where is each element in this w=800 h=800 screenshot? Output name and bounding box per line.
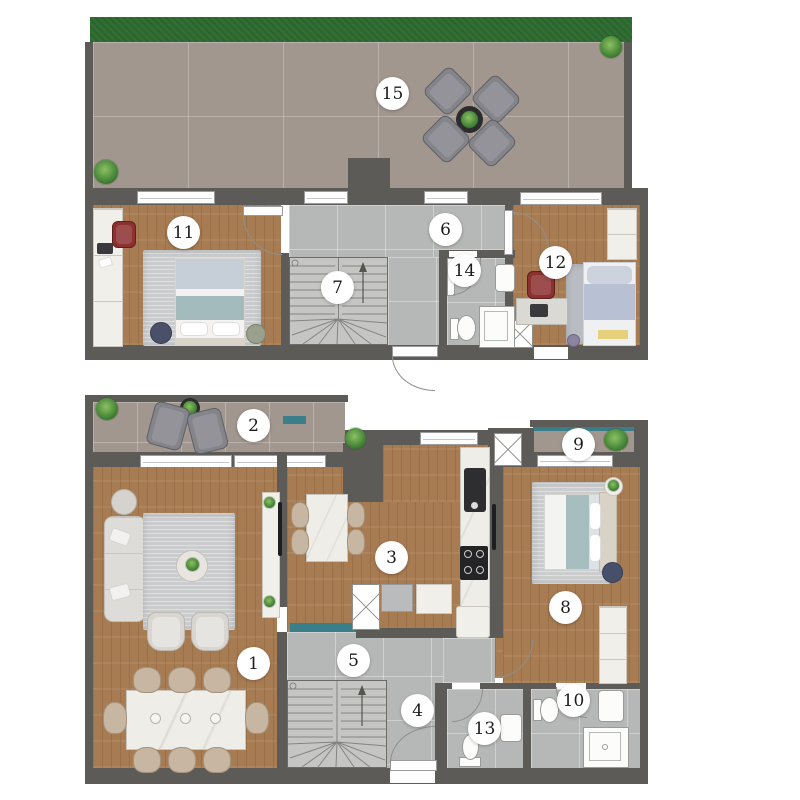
wall-wc-bathroom <box>523 689 531 768</box>
kitchen-chair <box>291 529 309 555</box>
room-label-stairs-7: 7 <box>321 271 354 304</box>
headboard <box>599 492 617 572</box>
floor-plan-canvas: 15 11 6 7 14 12 <box>0 0 800 800</box>
hall-6-floor-lower <box>388 257 443 345</box>
sink <box>598 690 624 722</box>
entry-opening <box>390 769 435 783</box>
window-terrace-1 <box>137 191 215 204</box>
room-label-hall-5: 5 <box>337 644 370 677</box>
tv-living <box>278 502 282 556</box>
sink <box>500 714 522 742</box>
wall-hall-14-v <box>439 255 447 345</box>
nightstand <box>246 324 266 344</box>
wall-balcony-2-top <box>85 395 348 402</box>
grass-strip <box>90 17 632 42</box>
cabinet <box>416 584 452 614</box>
wall-kitchen-block <box>343 443 383 503</box>
nightstand <box>602 562 623 583</box>
plant <box>604 429 628 451</box>
armchair <box>191 612 229 651</box>
wall-living-hall <box>277 632 287 768</box>
faucet <box>471 502 478 509</box>
tv-bedroom-8 <box>492 504 496 550</box>
room-label-balcony-2: 2 <box>237 409 270 442</box>
burner <box>464 550 472 558</box>
side-table <box>111 489 137 515</box>
window-bedroom-12 <box>520 192 602 205</box>
pillow <box>587 266 632 284</box>
plant <box>608 480 619 491</box>
kitchen-table <box>306 494 348 562</box>
room-label-terrace: 15 <box>376 77 409 110</box>
room-label-bathroom-14: 14 <box>448 254 481 287</box>
dining-chair <box>245 702 269 734</box>
bed-blanket <box>176 259 244 289</box>
wall-11-hall <box>281 253 289 345</box>
glass-partition-kitchen <box>290 623 356 632</box>
pillow <box>589 534 601 562</box>
door-leaf-12 <box>504 210 513 255</box>
wall-balcony-9-top <box>530 420 648 427</box>
kitchen-chair <box>347 502 365 528</box>
headboard <box>175 338 245 346</box>
room-label-hall-6: 6 <box>429 213 462 246</box>
armchair <box>147 612 185 651</box>
burner <box>476 566 484 574</box>
wall-right-lower <box>640 465 648 784</box>
wardrobe <box>607 208 637 260</box>
bed-blanket <box>584 284 635 320</box>
burner <box>464 566 472 574</box>
toilet <box>457 315 476 341</box>
window-kitchen <box>420 432 478 445</box>
dining-chair <box>203 667 231 693</box>
staircase-lower <box>287 680 387 768</box>
kitchen-chair <box>291 502 309 528</box>
shaft-kitchen <box>494 433 522 466</box>
dining-chair <box>203 747 231 773</box>
desk-chair <box>112 221 136 248</box>
place-setting <box>210 713 221 724</box>
nightstand <box>150 322 172 344</box>
wall-vestibule-wc <box>435 683 447 768</box>
window-terrace-2 <box>304 191 348 204</box>
wall-terrace-notch <box>348 158 390 190</box>
room-label-balcony-9: 9 <box>562 428 595 461</box>
room-label-bedroom-12: 12 <box>539 246 572 279</box>
wall-right-upper <box>640 188 648 360</box>
place-setting <box>150 713 161 724</box>
bed-accent <box>598 330 628 339</box>
window-terrace-3 <box>424 191 468 204</box>
room-label-vestibule: 4 <box>401 694 434 727</box>
bed-blanket-teal <box>176 296 244 320</box>
plant <box>264 596 275 607</box>
dining-chair <box>103 702 127 734</box>
sink <box>495 264 515 292</box>
pillow <box>180 322 208 336</box>
dishwasher <box>381 584 413 612</box>
wall-kitchen-bedroom <box>488 467 503 638</box>
shower-drain <box>602 744 608 750</box>
shower-tray <box>484 311 508 341</box>
plant <box>96 398 118 420</box>
glass-railing <box>283 416 306 424</box>
plant <box>461 111 478 128</box>
room-label-bedroom-11: 11 <box>167 216 200 249</box>
wall-bottom-lower <box>85 768 648 784</box>
wardrobe <box>599 606 627 684</box>
plant <box>345 428 366 449</box>
upper-floor-plan: 15 11 6 7 14 12 <box>0 0 800 392</box>
laptop <box>530 304 548 317</box>
laptop <box>97 243 113 254</box>
dining-chair <box>133 747 161 773</box>
room-label-wc-13: 13 <box>468 712 501 745</box>
plant <box>186 558 199 571</box>
kitchen-chair <box>347 529 365 555</box>
burner <box>476 550 484 558</box>
corridor-floor <box>443 638 495 683</box>
place-setting <box>180 713 191 724</box>
room-label-kitchen: 3 <box>375 541 408 574</box>
plant <box>600 36 622 58</box>
shaft-lower <box>352 584 380 630</box>
pillow <box>212 322 240 336</box>
plant <box>264 497 275 508</box>
dining-chair <box>168 667 196 693</box>
room-label-bedroom-8: 8 <box>549 591 582 624</box>
bed-blanket-teal <box>566 495 590 569</box>
wall-terrace-right <box>624 42 632 190</box>
dining-chair <box>133 667 161 693</box>
fridge <box>456 606 490 638</box>
wall-opening-upper <box>534 347 568 359</box>
plant <box>94 160 118 184</box>
pillow <box>589 502 601 530</box>
dining-chair <box>168 747 196 773</box>
stool <box>567 334 580 347</box>
room-label-bathroom-10: 10 <box>557 684 590 717</box>
door-arc-terrace-exit <box>392 356 435 391</box>
room-label-living: 1 <box>237 647 270 680</box>
